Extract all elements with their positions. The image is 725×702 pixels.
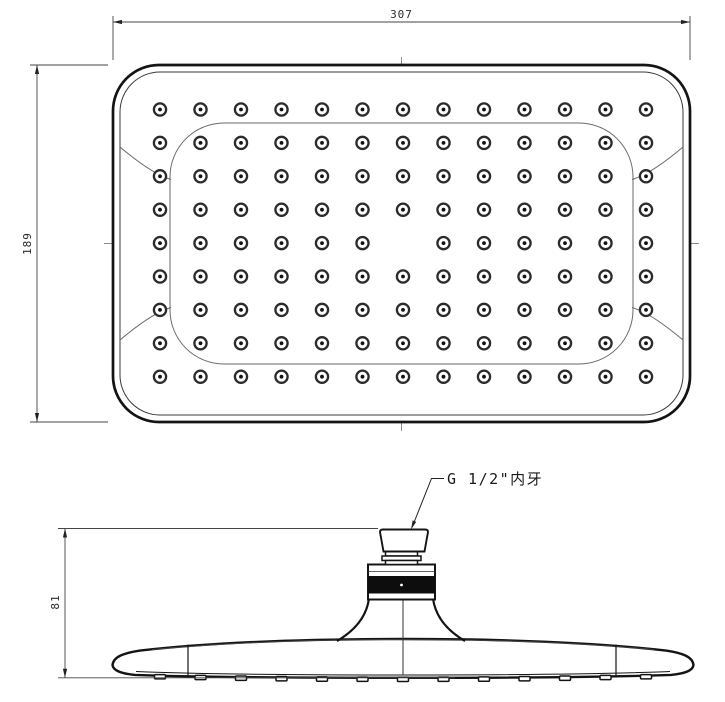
nozzle-dot	[239, 208, 243, 212]
nozzle-dot	[280, 308, 284, 312]
nozzle-dot	[361, 341, 365, 345]
nozzle-dot	[361, 108, 365, 112]
nozzle-dot	[361, 275, 365, 279]
nozzle-dot	[280, 208, 284, 212]
nozzle-dot	[239, 174, 243, 178]
nozzle-dot	[442, 308, 446, 312]
nozzle-dot	[199, 141, 203, 145]
nozzle-dot	[280, 275, 284, 279]
nozzle-dot	[523, 108, 527, 112]
nozzle-dot	[644, 375, 648, 379]
nozzle-dot	[239, 375, 243, 379]
nozzle-dot	[158, 275, 162, 279]
nozzle-dot	[401, 375, 405, 379]
nozzle-dot	[280, 108, 284, 112]
connector-label: G 1/2"内牙	[447, 470, 543, 488]
nozzle-dot	[401, 308, 405, 312]
nozzle-dot	[361, 208, 365, 212]
nozzle-dot	[280, 174, 284, 178]
nozzle-dot	[523, 308, 527, 312]
nozzle-dot	[239, 341, 243, 345]
nozzle-dot	[442, 141, 446, 145]
nozzle-dot	[563, 108, 567, 112]
nozzle-dot	[239, 108, 243, 112]
nozzle-dot	[604, 375, 608, 379]
nozzle-dot	[320, 174, 324, 178]
nozzle-dot	[563, 375, 567, 379]
nozzle-dot	[482, 108, 486, 112]
nozzle-dot	[644, 308, 648, 312]
nozzle-dot	[604, 308, 608, 312]
nozzle-dot	[320, 208, 324, 212]
dim-width-value: 307	[390, 8, 413, 21]
nozzle-dot	[523, 341, 527, 345]
nozzle-dot	[644, 341, 648, 345]
drawing-canvas: 307 189	[0, 0, 725, 702]
nozzle-dot	[523, 141, 527, 145]
nozzle-bump	[479, 677, 490, 681]
nozzle-dot	[644, 108, 648, 112]
dim-height-value: 189	[21, 232, 34, 255]
nozzle-dot	[199, 174, 203, 178]
nozzle-dot	[158, 208, 162, 212]
nozzle-dot	[442, 208, 446, 212]
nozzle-dot	[482, 308, 486, 312]
nozzle-dot	[482, 341, 486, 345]
nozzle-dot	[442, 241, 446, 245]
nozzle-dot	[361, 141, 365, 145]
nozzle-dot	[361, 375, 365, 379]
nozzle-dot	[280, 375, 284, 379]
nozzle-dot	[604, 108, 608, 112]
nozzle-dot	[320, 275, 324, 279]
nozzle-dot	[199, 108, 203, 112]
nozzle-dot	[361, 308, 365, 312]
nozzle-dot	[604, 275, 608, 279]
nozzle-dot	[482, 141, 486, 145]
nozzle-dot	[280, 141, 284, 145]
nozzle-dot	[401, 141, 405, 145]
nozzle-dot	[442, 375, 446, 379]
nozzle-dot	[239, 241, 243, 245]
nozzle-dot	[644, 275, 648, 279]
nozzle-dot	[604, 174, 608, 178]
nozzle-dot	[361, 174, 365, 178]
nozzle-dot	[563, 275, 567, 279]
nozzle-dot	[523, 241, 527, 245]
nozzle-dot	[320, 341, 324, 345]
nozzle-bump	[600, 675, 611, 679]
nozzle-dot	[563, 308, 567, 312]
nozzle-dot	[482, 208, 486, 212]
nozzle-dot	[401, 275, 405, 279]
nozzle-dot	[644, 241, 648, 245]
nozzle-dot	[523, 275, 527, 279]
nozzle-dot	[604, 241, 608, 245]
nozzle-dot	[199, 308, 203, 312]
thread-nut	[380, 530, 428, 552]
nozzle-dot	[401, 208, 405, 212]
collar-ring-lower	[386, 561, 418, 565]
nozzle-dot	[644, 208, 648, 212]
nozzle-dot	[482, 275, 486, 279]
dim-side-height-value: 81	[49, 594, 62, 609]
nozzle-dot	[482, 174, 486, 178]
nozzle-dot	[563, 241, 567, 245]
nozzle-dot	[158, 241, 162, 245]
nozzle-dot	[644, 141, 648, 145]
nozzle-dot	[199, 208, 203, 212]
nozzle-dot	[442, 341, 446, 345]
nozzle-dot	[604, 141, 608, 145]
nozzle-dot	[158, 108, 162, 112]
nozzle-dot	[482, 375, 486, 379]
nozzle-dot	[199, 375, 203, 379]
nozzle-dot	[158, 141, 162, 145]
nozzle-dot	[320, 375, 324, 379]
nozzle-dot	[442, 108, 446, 112]
nozzle-dot	[239, 308, 243, 312]
nozzle-dot	[401, 174, 405, 178]
nozzle-bump	[560, 676, 571, 680]
band-center-dot	[400, 584, 403, 587]
nozzle-dot	[199, 275, 203, 279]
nozzle-dot	[604, 341, 608, 345]
technical-drawing-page: 307 189	[0, 0, 725, 702]
nozzle-dot	[320, 308, 324, 312]
nozzle-dot	[563, 174, 567, 178]
nozzle-dot	[199, 241, 203, 245]
nozzle-dot	[442, 275, 446, 279]
nozzle-dot	[199, 341, 203, 345]
nozzle-dot	[401, 341, 405, 345]
nozzle-dot	[401, 108, 405, 112]
nozzle-dot	[604, 208, 608, 212]
nozzle-dot	[442, 174, 446, 178]
nozzle-dot	[158, 174, 162, 178]
nozzle-dot	[320, 141, 324, 145]
nozzle-dot	[239, 141, 243, 145]
nozzle-dot	[523, 174, 527, 178]
nozzle-dot	[523, 375, 527, 379]
nozzle-bump	[519, 677, 530, 681]
nozzle-dot	[644, 174, 648, 178]
nozzle-dot	[158, 308, 162, 312]
nozzle-dot	[563, 141, 567, 145]
nozzle-dot	[563, 208, 567, 212]
nozzle-dot	[320, 241, 324, 245]
nozzle-dot	[280, 341, 284, 345]
nozzle-dot	[320, 108, 324, 112]
nozzle-dot	[563, 341, 567, 345]
nozzle-dot	[280, 241, 284, 245]
nozzle-bump	[276, 677, 287, 681]
nozzle-dot	[239, 275, 243, 279]
nozzle-bump	[641, 675, 652, 679]
nozzle-dot	[158, 341, 162, 345]
nozzle-dot	[523, 208, 527, 212]
nozzle-dot	[361, 241, 365, 245]
nozzle-dot	[158, 375, 162, 379]
nozzle-dot	[482, 241, 486, 245]
